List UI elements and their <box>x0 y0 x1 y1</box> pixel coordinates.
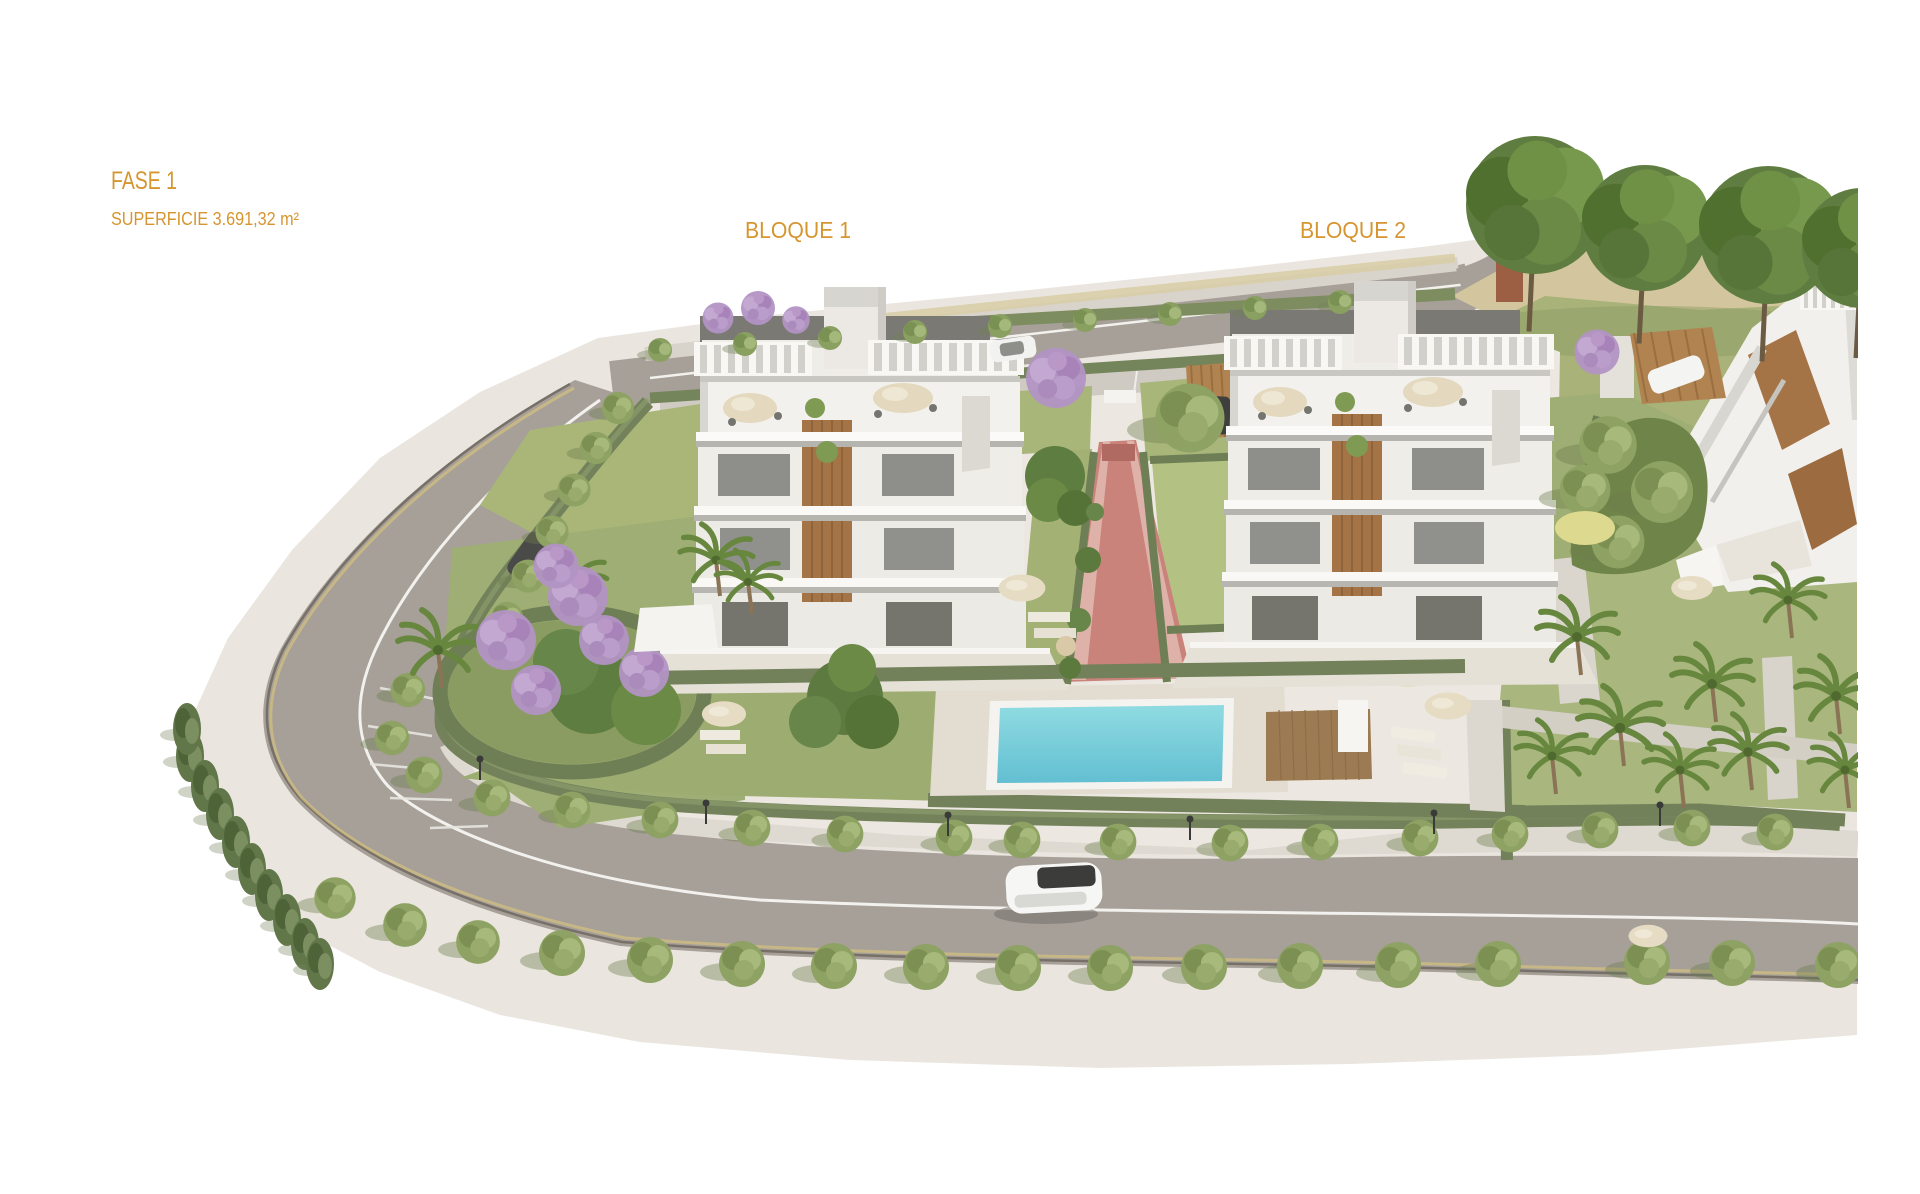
svg-text:FASE 1: FASE 1 <box>111 167 177 195</box>
svg-text:BLOQUE 1: BLOQUE 1 <box>745 217 851 243</box>
svg-text:SUPERFICIE 3.691,32 m²: SUPERFICIE 3.691,32 m² <box>111 209 299 229</box>
svg-text:BLOQUE 2: BLOQUE 2 <box>1300 217 1406 243</box>
